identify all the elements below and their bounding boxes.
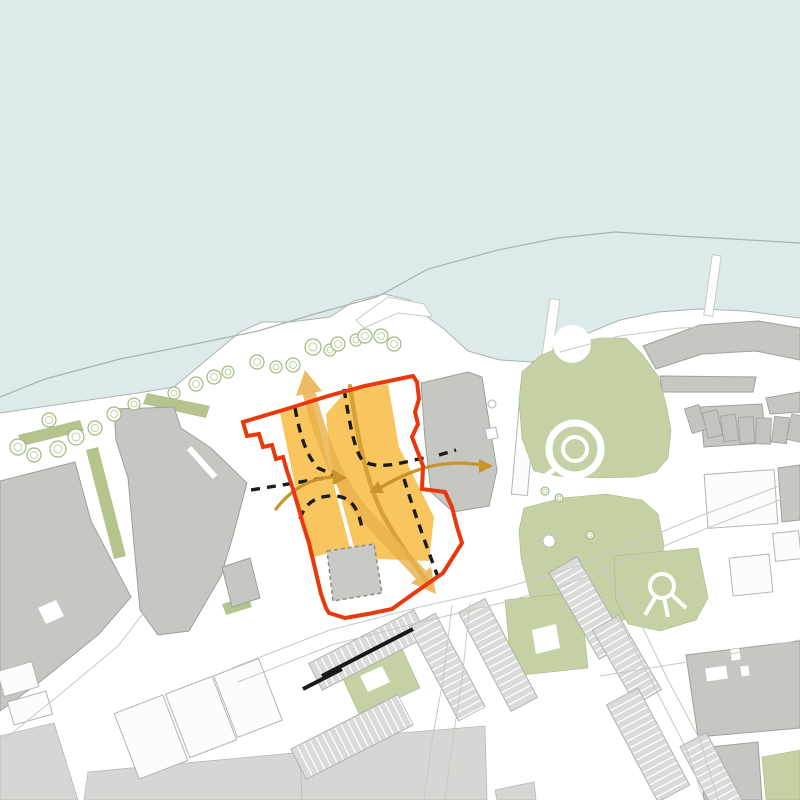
- tree-icon: [42, 413, 56, 427]
- tree-icon: [555, 494, 563, 502]
- tree-icon: [270, 361, 282, 373]
- tree-icon: [107, 407, 121, 421]
- tree-icon: [541, 487, 549, 495]
- tree-icon: [10, 439, 26, 455]
- tree-icon: [88, 421, 102, 435]
- terrace-row: [606, 688, 689, 800]
- tree-icon: [250, 355, 264, 369]
- tree-icon: [286, 358, 300, 372]
- tree-icon: [305, 339, 321, 355]
- light-slabs: [0, 723, 536, 800]
- tree-icon: [68, 429, 84, 445]
- tree-icon: [374, 329, 388, 343]
- tree-icon: [222, 366, 234, 378]
- tree-icon: [27, 448, 41, 462]
- tree-icon: [189, 377, 203, 391]
- tree-icon: [128, 398, 140, 410]
- site-plan-svg: [0, 0, 800, 800]
- tree-icon: [207, 370, 221, 384]
- site-plan-map: [0, 0, 800, 800]
- tree-icon: [358, 329, 372, 343]
- tree-icon: [387, 337, 401, 351]
- tree-icon: [586, 531, 594, 539]
- tree-icon: [168, 387, 180, 399]
- retained-building: [327, 544, 382, 601]
- tree-icon: [331, 337, 345, 351]
- tree-icon: [50, 441, 66, 457]
